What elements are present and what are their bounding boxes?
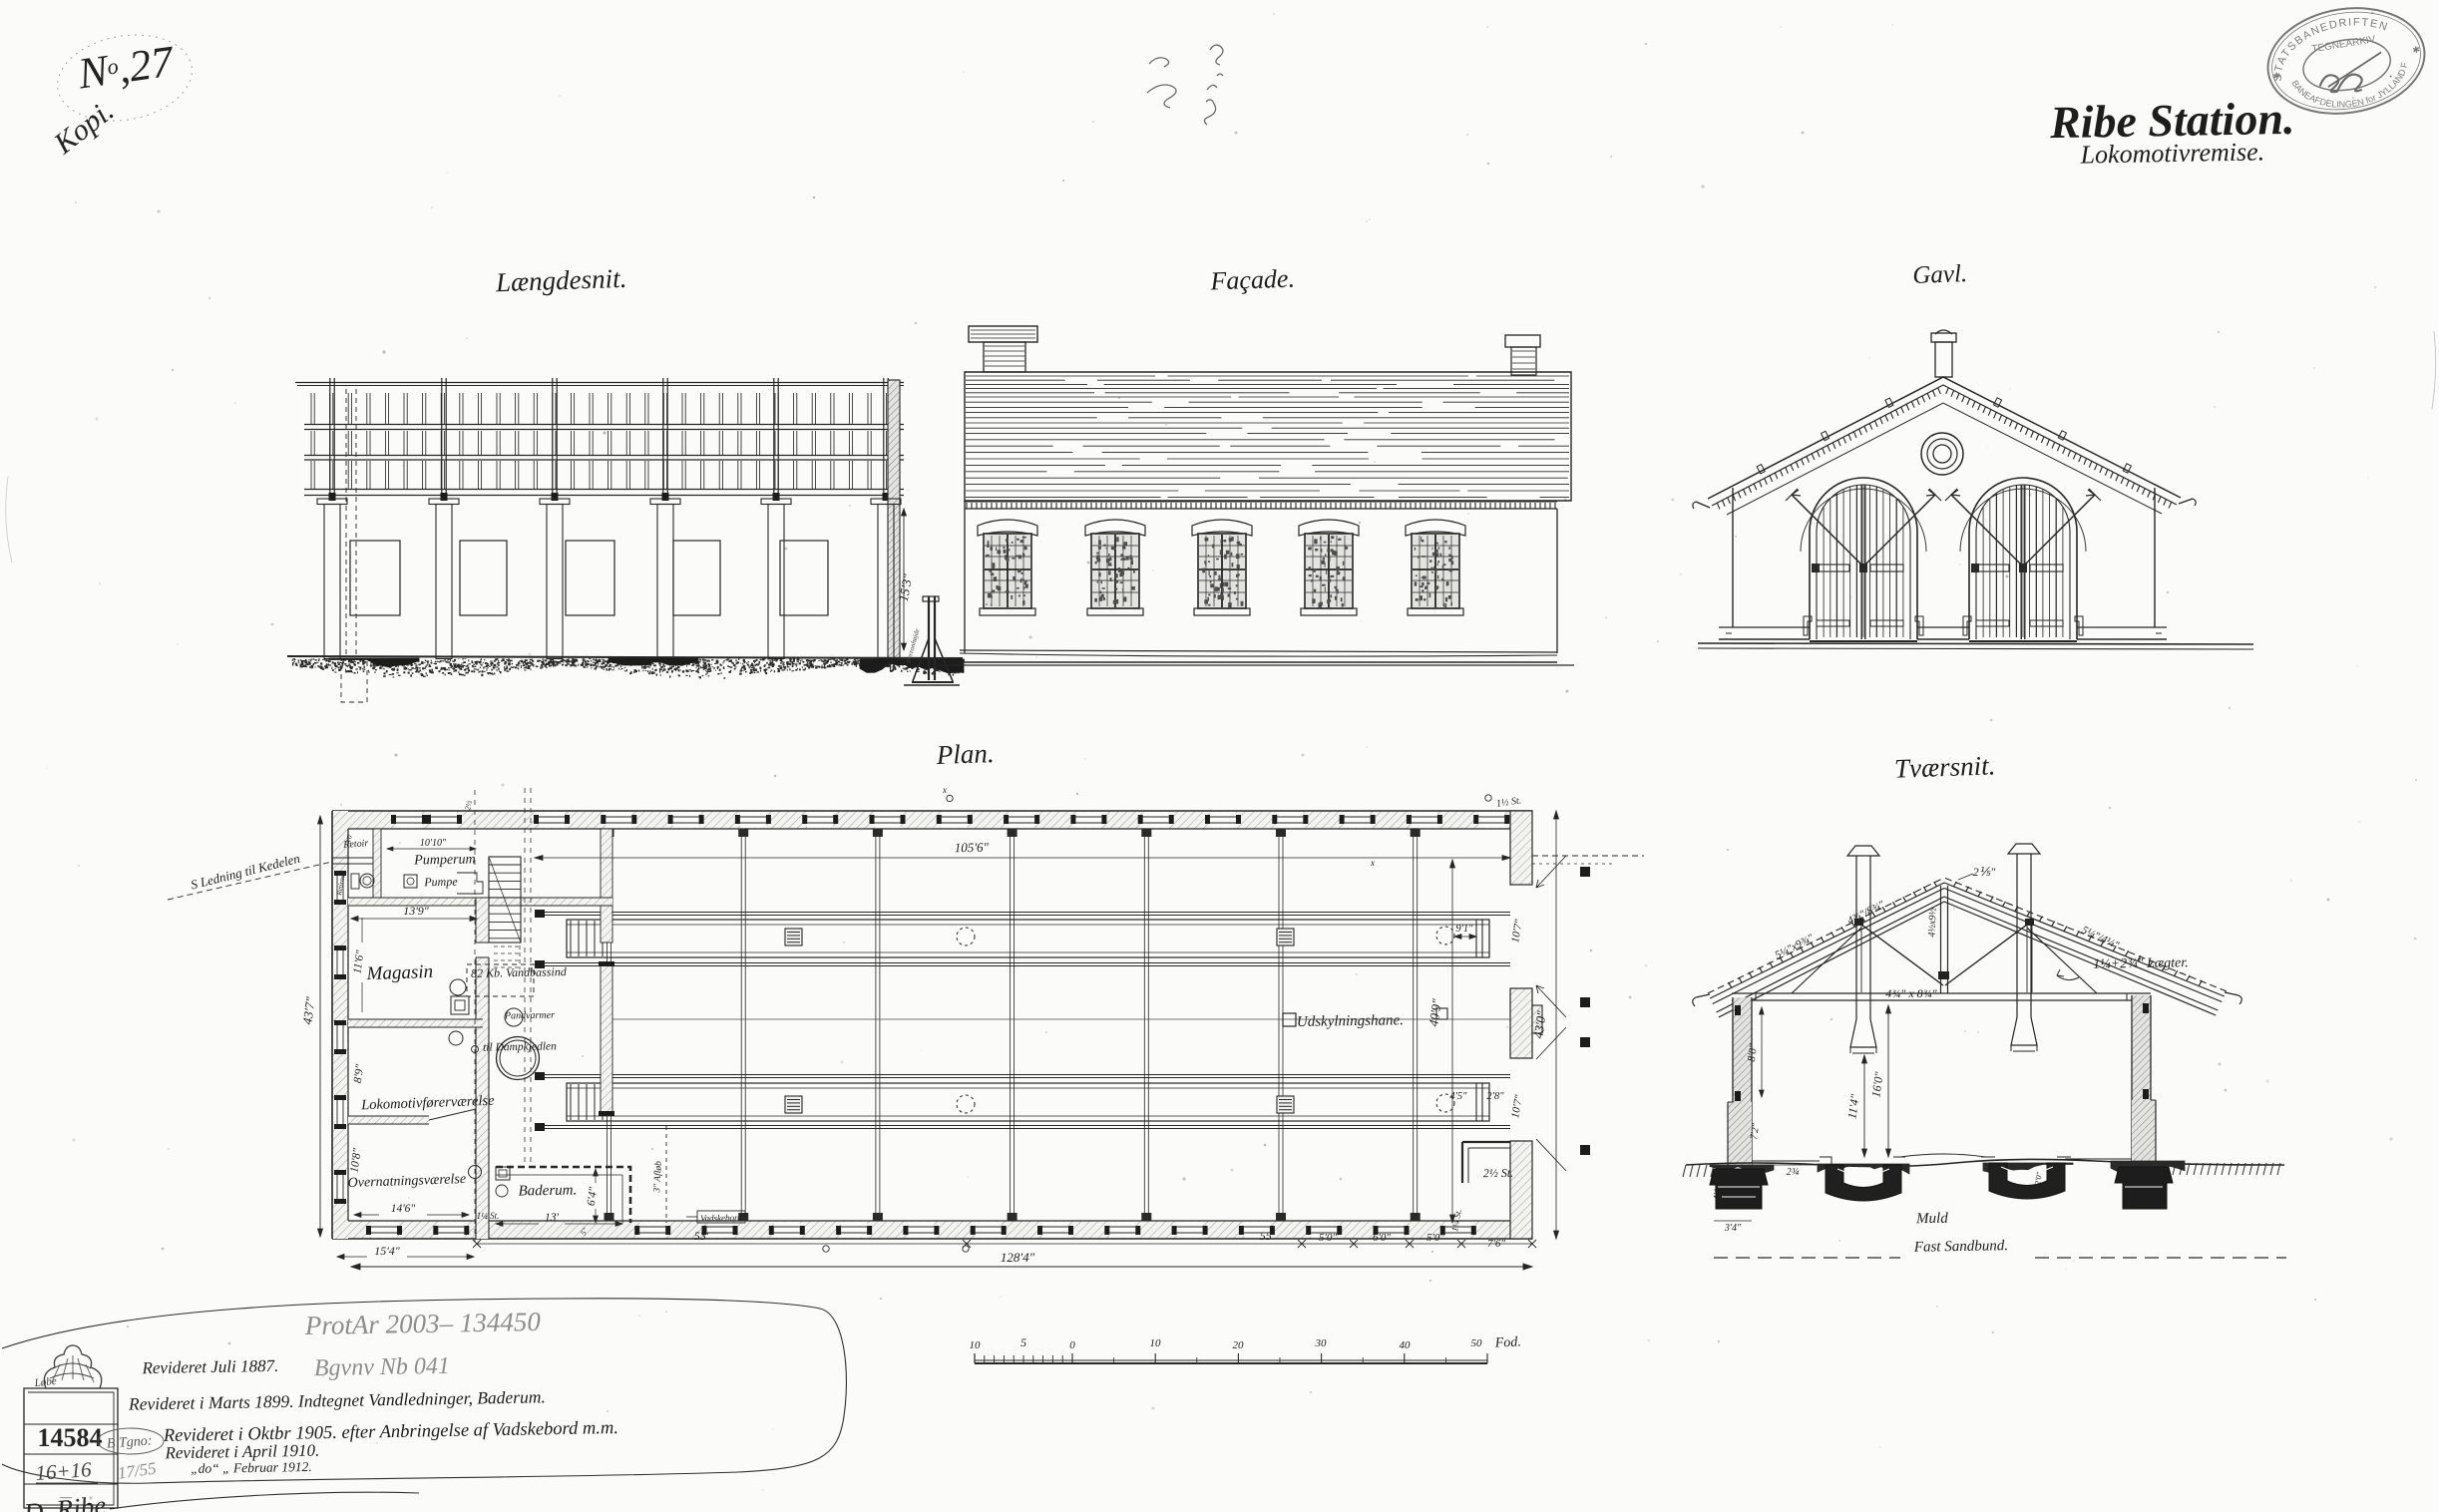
svg-text:105'6": 105'6" (955, 840, 990, 856)
svg-text:✱: ✱ (2272, 71, 2281, 82)
svg-text:3'4": 3'4" (1724, 1223, 1742, 1234)
svg-text:Pumpe: Pumpe (423, 875, 458, 890)
svg-text:10'10": 10'10" (420, 838, 447, 849)
svg-text:128'4": 128'4" (1001, 1250, 1035, 1265)
svg-text:9'1": 9'1" (1455, 924, 1473, 935)
svg-text:Pumperum: Pumperum (413, 852, 476, 868)
svg-text:Façade.: Façade. (1209, 264, 1295, 296)
svg-text:Udskylningshane.: Udskylningshane. (1297, 1012, 1404, 1030)
svg-text:5'0": 5'0" (1319, 1232, 1337, 1244)
svg-text:til Dampkjedlen: til Dampkjedlen (483, 1040, 557, 1053)
svg-text:5'0": 5'0" (1426, 1232, 1444, 1244)
svg-text:0: 0 (1069, 1339, 1075, 1351)
svg-text:Magasin: Magasin (365, 961, 433, 984)
svg-text:Længdesnit.: Længdesnit. (495, 263, 627, 298)
svg-text:„do“ „ Februar 1912.: „do“ „ Februar 1912. (191, 1459, 312, 1476)
svg-text:15'4": 15'4" (374, 1244, 401, 1258)
svg-text:3'0: 3'0 (344, 834, 354, 845)
svg-text:ProtAr 2003– 134450: ProtAr 2003– 134450 (304, 1307, 542, 1340)
svg-text:40: 40 (1400, 1339, 1412, 1351)
svg-text:Plan.: Plan. (935, 738, 995, 770)
svg-text:x: x (942, 785, 947, 795)
svg-text:Revideret Juli 1887.: Revideret Juli 1887. (141, 1356, 278, 1377)
svg-text:82 Kb. Vandbassind: 82 Kb. Vandbassind (471, 964, 568, 980)
svg-text:4¾" x 8¾": 4¾" x 8¾" (1885, 986, 1937, 1000)
svg-text:2½ St.: 2½ St. (1483, 1166, 1514, 1181)
svg-text:14'6": 14'6" (391, 1203, 416, 1215)
svg-text:4½x9½: 4½x9½ (1926, 908, 1938, 938)
svg-text:10: 10 (970, 1339, 982, 1351)
svg-text:3" Afløb: 3" Afløb (651, 1161, 664, 1194)
svg-text:55': 55' (1260, 1229, 1275, 1243)
svg-text:2¾: 2¾ (1787, 1167, 1800, 1178)
svg-text:13': 13' (545, 1212, 560, 1224)
svg-text:Lokomotivremise.: Lokomotivremise. (2079, 137, 2264, 169)
svg-text:Bgvnv Nb 041: Bgvnv Nb 041 (314, 1353, 450, 1381)
svg-text:Baderum.: Baderum. (518, 1182, 577, 1199)
svg-text:1¼ St.: 1¼ St. (477, 1211, 500, 1221)
svg-text:30: 30 (1315, 1337, 1328, 1349)
svg-text:Vadskebord: Vadskebord (700, 1213, 742, 1224)
svg-text:Muld: Muld (1915, 1211, 1948, 1228)
svg-text:50: 50 (1471, 1337, 1483, 1349)
svg-text:53': 53' (694, 1229, 709, 1243)
svg-text:✱: ✱ (2412, 44, 2421, 55)
svg-text:B Tgno:: B Tgno: (107, 1433, 153, 1451)
svg-text:Gavl.: Gavl. (1912, 260, 1968, 289)
svg-text:2½: 2½ (463, 800, 474, 811)
svg-text:2'8": 2'8" (1486, 1091, 1504, 1102)
svg-text:7'6": 7'6" (1487, 1238, 1505, 1250)
svg-text:13'9": 13'9" (403, 904, 430, 918)
svg-text:Løbe: Løbe (33, 1375, 57, 1389)
svg-text:Fast Sandbund.: Fast Sandbund. (1913, 1238, 2008, 1256)
svg-text:6'0": 6'0" (1373, 1232, 1391, 1244)
svg-text:2⅕": 2⅕" (1973, 865, 1997, 879)
svg-text:1¼+2¾" Lægter.: 1¼+2¾" Lægter. (2093, 955, 2189, 972)
svg-text:8'0": 8'0" (1746, 1042, 1760, 1062)
svg-text:14584: 14584 (38, 1423, 103, 1452)
svg-text:5: 5 (1020, 1335, 1026, 1349)
svg-text:10: 10 (1150, 1337, 1162, 1349)
svg-text:20: 20 (1233, 1339, 1245, 1351)
svg-text:Pandvarmer: Pandvarmer (504, 1010, 555, 1022)
svg-text:x: x (1370, 858, 1375, 868)
svg-text:4'5": 4'5" (1449, 1091, 1467, 1102)
svg-text:Fod.: Fod. (1493, 1334, 1521, 1350)
svg-text:16+16: 16+16 (35, 1457, 93, 1485)
svg-text:Tværsnit.: Tværsnit. (1894, 750, 1996, 784)
